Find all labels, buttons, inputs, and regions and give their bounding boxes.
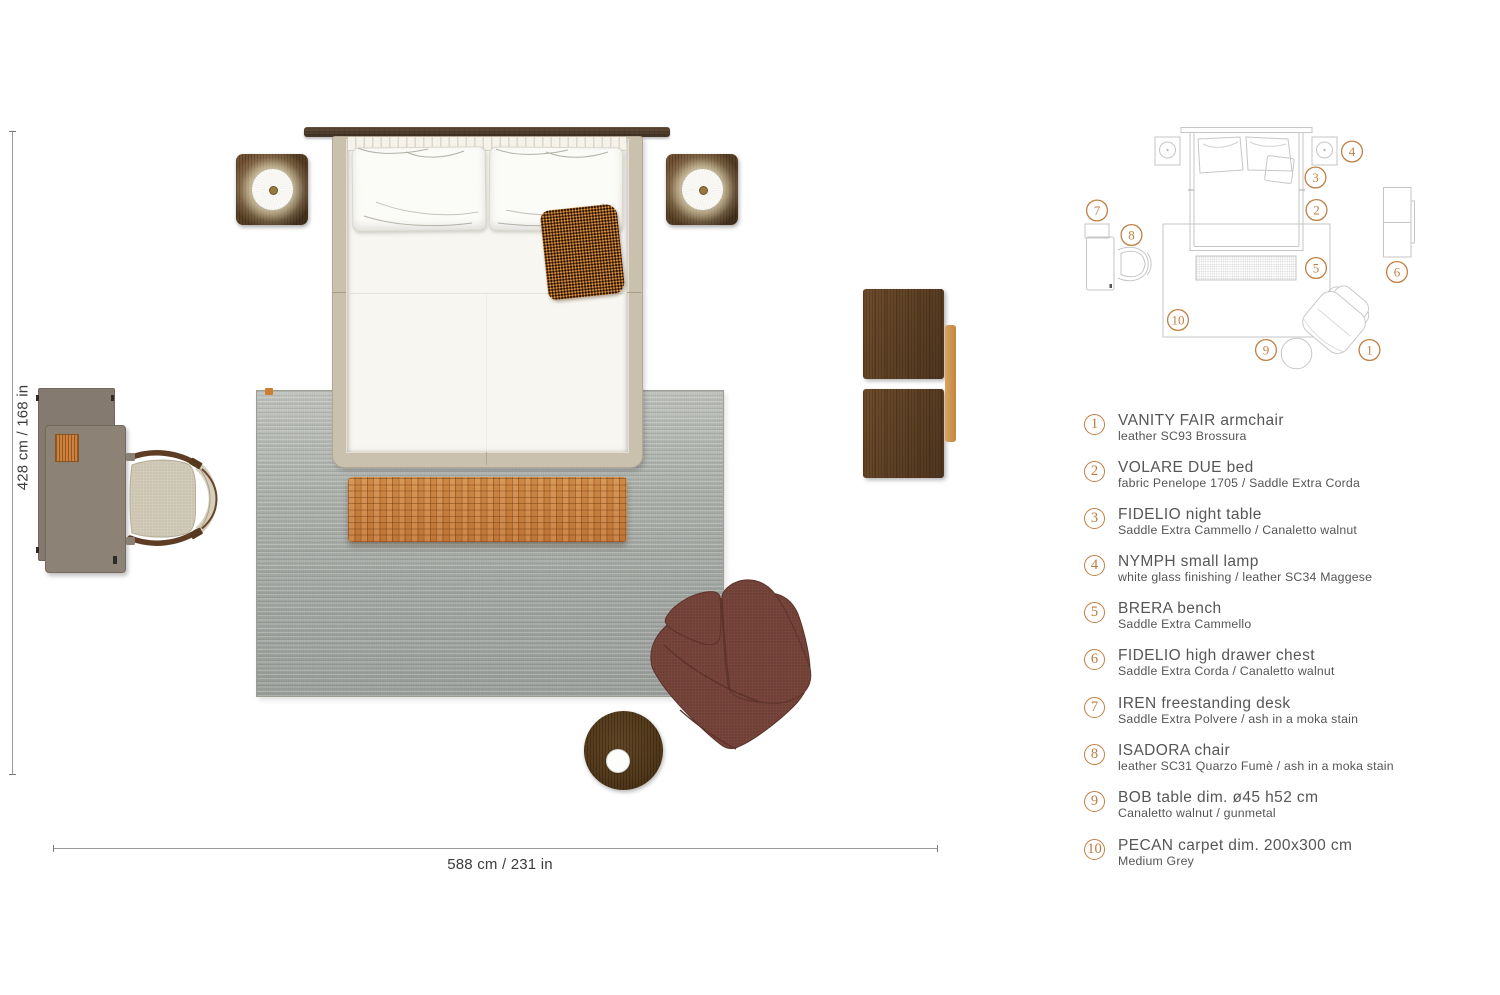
svg-text:3: 3 — [1312, 170, 1319, 185]
svg-text:9: 9 — [1263, 343, 1270, 358]
svg-text:7: 7 — [1094, 203, 1101, 218]
svg-text:1: 1 — [1366, 343, 1373, 358]
svg-text:6: 6 — [1394, 265, 1401, 280]
svg-text:4: 4 — [1349, 144, 1356, 159]
svg-text:8: 8 — [1128, 228, 1135, 243]
svg-text:10: 10 — [1172, 313, 1185, 328]
svg-text:2: 2 — [1313, 203, 1320, 218]
svg-text:5: 5 — [1313, 261, 1320, 276]
